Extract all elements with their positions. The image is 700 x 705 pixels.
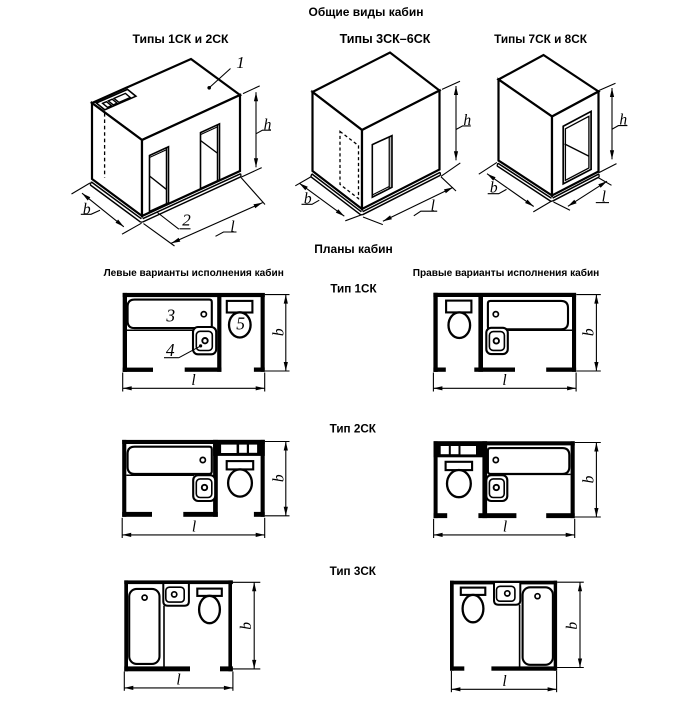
svg-text:3: 3 xyxy=(165,305,175,325)
svg-text:2: 2 xyxy=(182,211,191,230)
svg-text:l: l xyxy=(192,519,196,536)
svg-text:Правые варианты исполнения каб: Правые варианты исполнения кабин xyxy=(413,267,600,279)
svg-text:b: b xyxy=(581,328,598,336)
svg-text:l: l xyxy=(431,197,435,214)
svg-text:b: b xyxy=(490,180,498,197)
svg-text:b: b xyxy=(304,190,312,207)
svg-text:b: b xyxy=(581,475,598,483)
svg-text:Тип 2СК: Тип 2СК xyxy=(330,423,377,436)
svg-text:b: b xyxy=(564,622,581,630)
svg-text:h: h xyxy=(619,112,627,129)
svg-text:l: l xyxy=(230,218,234,235)
svg-text:1: 1 xyxy=(236,53,245,72)
svg-text:l: l xyxy=(502,673,506,690)
svg-text:Тип 1СК: Тип 1СК xyxy=(330,283,377,296)
svg-text:Типы 1СК и 2СК: Типы 1СК и 2СК xyxy=(133,32,229,46)
svg-text:l: l xyxy=(191,372,195,389)
svg-text:l: l xyxy=(502,372,506,389)
svg-text:Общие виды кабин: Общие виды кабин xyxy=(309,5,424,19)
svg-text:Типы 3СК–6СК: Типы 3СК–6СК xyxy=(340,32,431,46)
svg-text:b: b xyxy=(271,474,288,482)
svg-text:l: l xyxy=(503,519,507,536)
svg-text:Планы кабин: Планы кабин xyxy=(314,242,392,256)
svg-text:b: b xyxy=(238,622,255,630)
svg-text:b: b xyxy=(83,201,91,218)
svg-text:h: h xyxy=(463,112,471,129)
svg-text:Левые варианты исполнения каби: Левые варианты исполнения кабин xyxy=(104,267,284,279)
svg-text:l: l xyxy=(176,672,180,689)
svg-text:Типы 7СК и 8СК: Типы 7СК и 8СК xyxy=(494,32,588,46)
svg-text:l: l xyxy=(602,188,606,205)
svg-text:Тип 3СК: Тип 3СК xyxy=(330,565,377,578)
svg-text:h: h xyxy=(264,116,272,133)
svg-text:b: b xyxy=(271,328,288,336)
svg-text:5: 5 xyxy=(236,313,245,333)
svg-text:4: 4 xyxy=(166,340,175,360)
